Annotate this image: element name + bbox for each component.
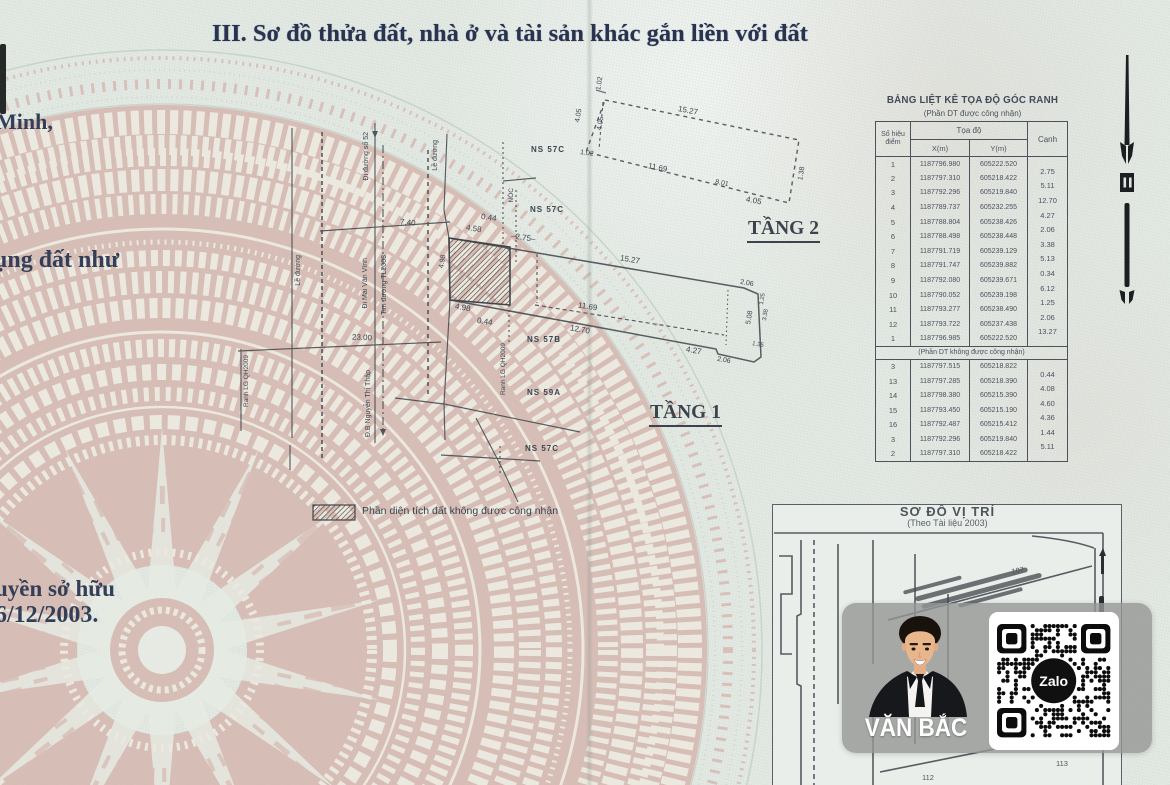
svg-text:113: 113 [1056, 759, 1068, 768]
svg-text:112: 112 [922, 773, 934, 782]
svg-text:Zalo: Zalo [1039, 673, 1068, 689]
svg-text:107: 107 [1011, 565, 1025, 576]
